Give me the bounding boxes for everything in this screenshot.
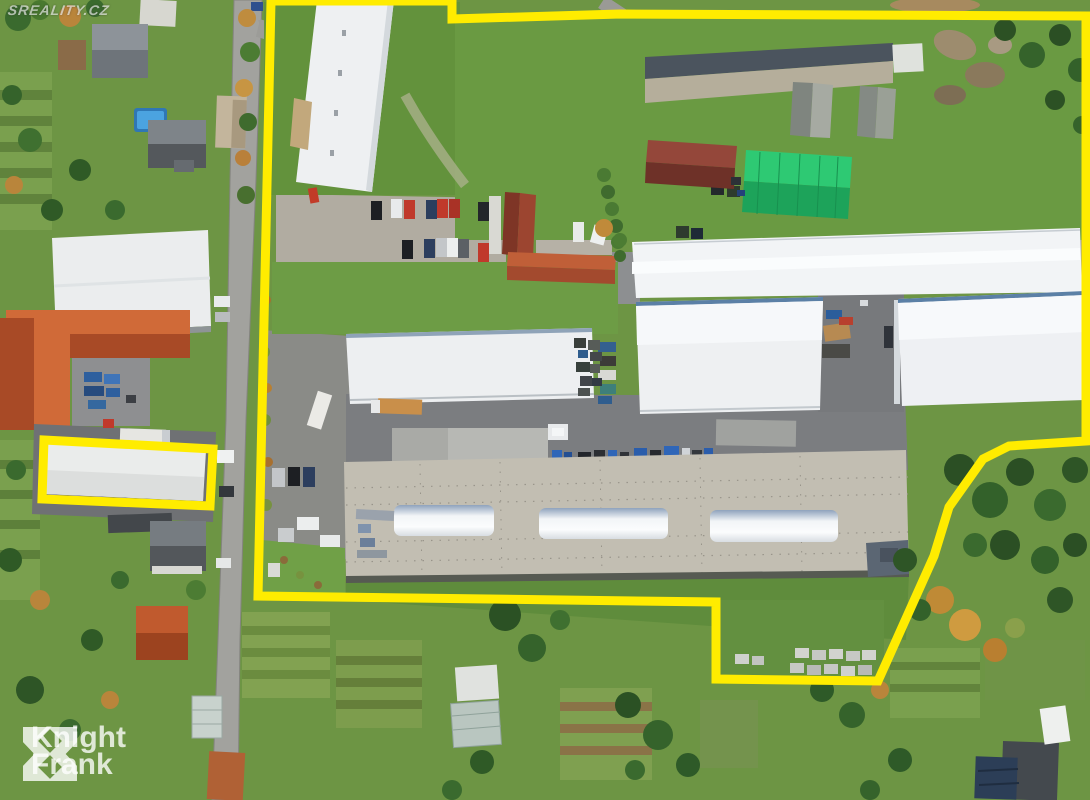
building-gray-1 — [790, 82, 833, 138]
warehouse-b-mid — [636, 297, 823, 414]
roof-vault-1 — [394, 505, 494, 536]
greenhouse — [192, 696, 222, 738]
warehouse-c-mid — [894, 291, 1085, 406]
sreality-watermark-text: Sreality.cz — [7, 2, 111, 18]
knight-frank-logo-icon — [22, 727, 78, 781]
house-south1 — [150, 521, 206, 574]
house-gray-topleft — [92, 24, 148, 78]
warehouse-center — [346, 328, 594, 404]
aerial-photo-canvas — [0, 0, 1090, 800]
building-maroon — [645, 140, 737, 189]
house-south2-orange — [136, 606, 188, 660]
greenhouse-glass — [451, 700, 502, 747]
sreality-watermark: Sreality.cz — [7, 2, 111, 18]
roof-vault-3 — [710, 510, 838, 542]
stable-red — [489, 192, 536, 257]
roof-vault-2 — [539, 508, 668, 539]
knight-frank-logo: Knight Frank — [22, 724, 126, 778]
shed-white — [455, 665, 499, 702]
warehouse-a-north — [632, 226, 1082, 298]
building-red-long — [507, 252, 616, 284]
car-red — [103, 419, 114, 428]
house-roof-bottom — [207, 751, 245, 800]
aerial-photo: Sreality.cz Knight Frank — [0, 0, 1090, 800]
van-white — [1040, 705, 1071, 744]
shed-brown — [58, 40, 86, 70]
house-dark-roof — [148, 120, 206, 172]
truck-orange — [371, 398, 422, 415]
building-gray-2 — [857, 86, 896, 139]
building-green-roof — [742, 150, 852, 219]
building-flat-small — [716, 419, 796, 446]
